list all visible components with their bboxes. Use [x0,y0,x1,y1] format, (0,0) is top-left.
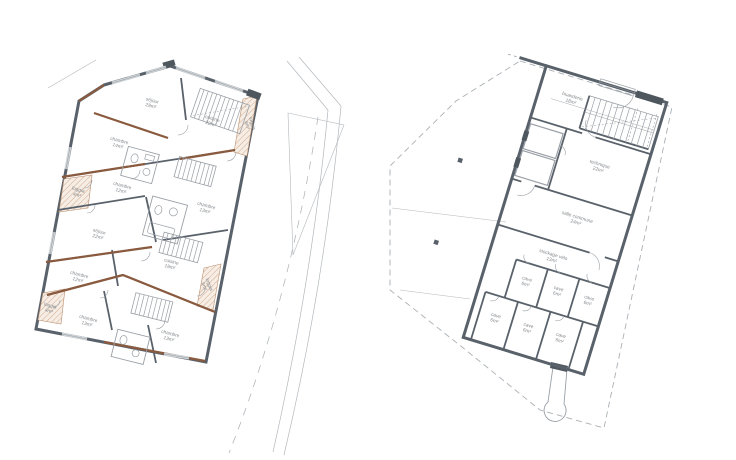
room-label: buanderie18m² [560,91,584,108]
partition-wall [512,179,632,216]
right-plan: buanderie18m²technique22m²salle commune2… [390,51,672,428]
partition-wall [530,117,650,154]
door-arc [178,125,188,135]
partition-wall [503,302,583,370]
left-plan: séjour28m²cuisine22m²loggia8m²chambre14m… [36,57,344,455]
shaft-room [515,151,555,186]
road-edge-line [284,57,341,455]
room-label: cave6m² [582,295,595,308]
partition-wall [516,259,610,288]
room-label: cave6m² [554,332,567,345]
partition-wall [163,230,228,240]
door-arc [517,182,534,199]
building-outline [463,66,667,374]
room-label: technique22m² [587,159,611,176]
partition-wall [104,291,112,330]
door-arc [227,152,236,161]
room-label: cave6m² [551,286,564,299]
room-label: salle commune24m² [559,210,594,231]
door-arc [141,252,150,261]
terrain-line [392,208,506,222]
partition-wall [505,259,517,297]
partition-wall [148,325,156,363]
stair-bottom [131,293,173,323]
terrain-line [400,290,470,299]
floor-plan-sheet: séjour28m²cuisine22m²loggia8m²chambre14m… [0,0,736,460]
door-arc [582,120,599,137]
room-label: chambre13m² [159,329,180,345]
path-outline [544,367,567,421]
wood-wall [94,113,168,138]
stair-mid-upper [174,156,216,186]
road-island [288,113,344,255]
room-label: chambre13m² [77,314,98,330]
basement-building: buanderie18m²technique22m²salle commune2… [425,51,668,374]
room-label: chambre12m² [68,270,89,286]
wall-stub-dashed [508,54,519,58]
room-label: séjour22m² [91,227,107,242]
wood-wall [180,150,235,159]
room-label: chambre14m² [108,136,129,152]
shaft-sill [513,157,521,168]
terrain [392,158,506,299]
room-label: séjour28m² [144,96,160,111]
door-arc [131,170,140,179]
room-label: cave6m² [489,313,502,326]
plans-canvas: séjour28m²cuisine22m²loggia8m²chambre14m… [0,0,736,460]
partition-wall [181,78,186,120]
door-arc [585,253,602,270]
partition-wall [471,292,486,340]
wood-wall [62,164,145,177]
room-label: cave6m² [520,276,533,289]
entrance-sill [635,90,664,105]
shaft-sill [522,130,530,141]
room-label: chambre13m² [195,201,216,217]
door-arcs [485,73,650,329]
shaft-room [523,124,563,159]
room-label: cuisine18m² [162,257,180,272]
room-label: stockage vélo13m² [537,248,569,268]
wood-wall [46,247,152,262]
terrain-marker [457,158,463,164]
site-line [48,60,96,88]
road-centerline [229,117,318,453]
terrain-marker [433,240,439,246]
basement-stair [579,96,658,150]
room-label: chambre12m² [111,181,132,197]
wood-wall [79,85,104,101]
room-label: cuisine22m² [203,114,221,130]
partition-wall [486,292,599,326]
room-label: cave6m² [521,323,534,336]
partition-wall [112,250,118,286]
